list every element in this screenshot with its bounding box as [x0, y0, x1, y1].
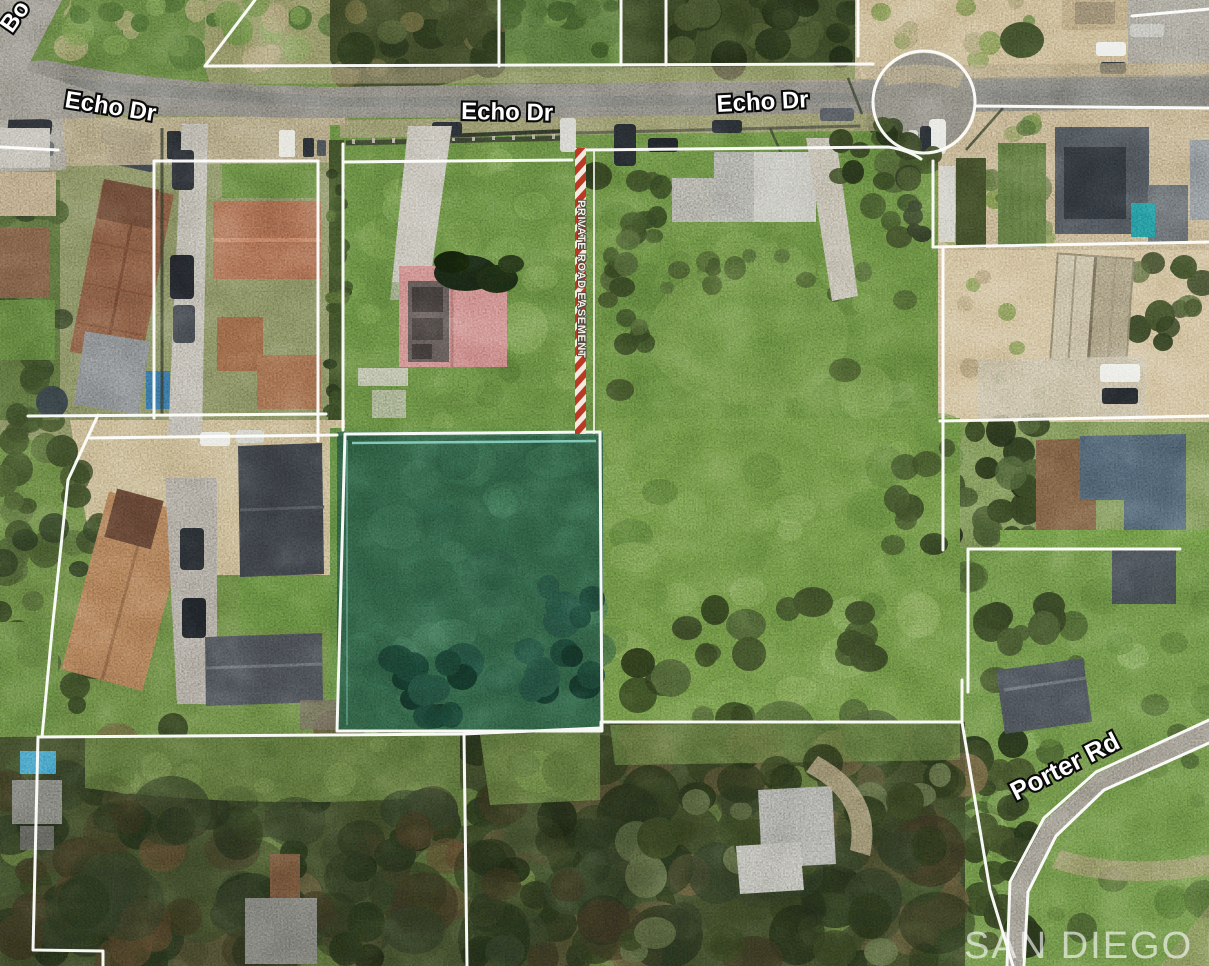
svg-text:SAN DIEGO MLS: SAN DIEGO MLS	[964, 925, 1209, 966]
svg-text:Echo Dr: Echo Dr	[716, 86, 809, 118]
svg-text:PRIVATE ROAD EASEMENT: PRIVATE ROAD EASEMENT	[575, 200, 587, 358]
svg-text:Echo Dr: Echo Dr	[461, 98, 553, 127]
